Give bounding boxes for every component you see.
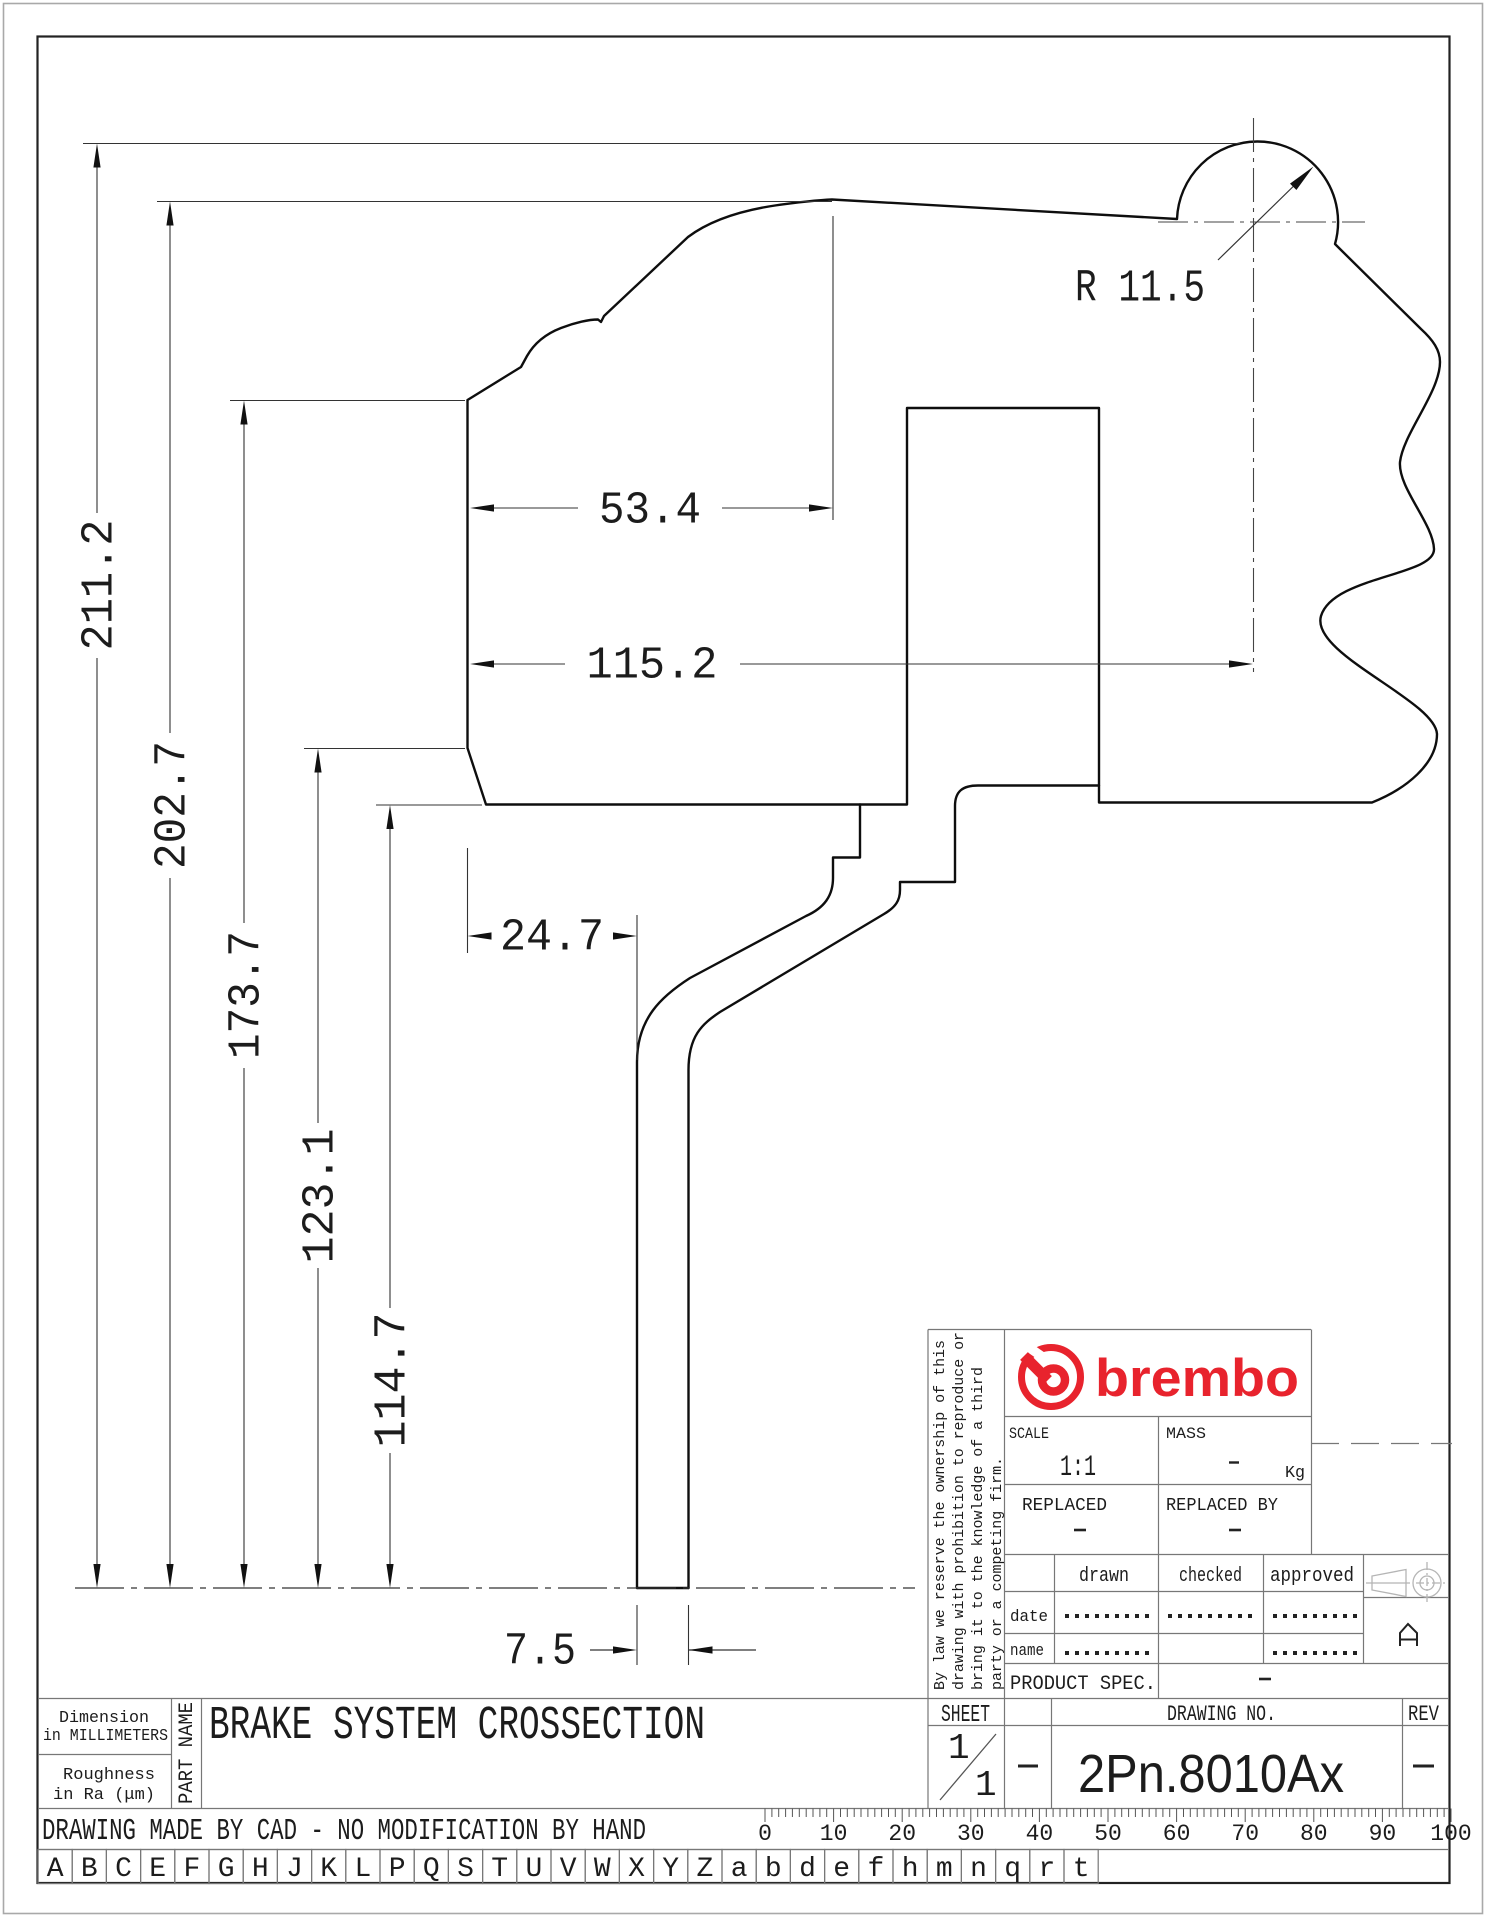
svg-text:date: date <box>1010 1608 1048 1627</box>
svg-text:n: n <box>970 1854 987 1885</box>
svg-text:E: E <box>149 1854 166 1885</box>
svg-text:drawing with prohibition to re: drawing with prohibition to reproduce or <box>952 1332 968 1690</box>
svg-text:REPLACED BY: REPLACED BY <box>1166 1496 1278 1516</box>
svg-text:in MILLIMETERS: in MILLIMETERS <box>43 1727 168 1746</box>
svg-text:24.7: 24.7 <box>500 913 604 964</box>
svg-text:Q: Q <box>423 1854 440 1885</box>
svg-text:V: V <box>560 1854 577 1885</box>
svg-text:bring it to the knowledge of a: bring it to the knowledge of a third <box>971 1367 987 1690</box>
svg-text:REV: REV <box>1408 1702 1440 1727</box>
svg-text:2Pn.8010Ax: 2Pn.8010Ax <box>1078 1744 1344 1804</box>
svg-text:80: 80 <box>1300 1821 1328 1847</box>
svg-text:G: G <box>218 1854 235 1885</box>
svg-text:b: b <box>765 1854 782 1885</box>
svg-text:53.4: 53.4 <box>599 486 701 537</box>
svg-text:DRAWING NO.: DRAWING NO. <box>1167 1702 1276 1727</box>
svg-text:h: h <box>902 1854 919 1885</box>
svg-text:115.2: 115.2 <box>587 641 718 692</box>
svg-text:0: 0 <box>758 1821 772 1847</box>
svg-text:S: S <box>457 1854 474 1885</box>
svg-text:in Ra (μm): in Ra (μm) <box>53 1786 155 1805</box>
svg-text:Kg: Kg <box>1285 1464 1305 1483</box>
svg-text:70: 70 <box>1231 1821 1259 1847</box>
svg-text:40: 40 <box>1026 1821 1054 1847</box>
svg-text:114.7: 114.7 <box>368 1313 419 1448</box>
svg-text:C: C <box>115 1854 132 1885</box>
svg-text:SHEET: SHEET <box>941 1702 990 1729</box>
svg-text:e: e <box>833 1854 850 1885</box>
svg-text:100: 100 <box>1430 1821 1471 1847</box>
svg-text:brembo: brembo <box>1095 1349 1299 1408</box>
svg-text:drawn: drawn <box>1079 1565 1129 1588</box>
svg-text:K: K <box>320 1854 337 1885</box>
svg-text:MASS: MASS <box>1166 1425 1206 1443</box>
svg-text:1: 1 <box>975 1765 997 1806</box>
svg-text:t: t <box>1073 1854 1090 1885</box>
svg-text:r: r <box>1038 1854 1055 1885</box>
svg-text:REPLACED: REPLACED <box>1022 1496 1107 1516</box>
svg-text:party or a competing firm.: party or a competing firm. <box>990 1457 1006 1690</box>
svg-text:approved: approved <box>1270 1565 1354 1588</box>
svg-text:a: a <box>731 1854 748 1885</box>
svg-text:1: 1 <box>948 1728 970 1769</box>
svg-text:U: U <box>525 1854 542 1885</box>
svg-text:173.7: 173.7 <box>222 931 273 1059</box>
svg-text:P: P <box>389 1854 406 1885</box>
svg-text:PART NAME: PART NAME <box>176 1702 199 1804</box>
svg-text:A: A <box>47 1854 64 1885</box>
svg-text:By law we reserve the ownershi: By law we reserve the ownership of this <box>933 1340 949 1690</box>
svg-text:m: m <box>936 1854 953 1885</box>
svg-text:202.7: 202.7 <box>148 741 199 869</box>
svg-text:f: f <box>867 1854 884 1885</box>
svg-text:1:1: 1:1 <box>1060 1451 1096 1485</box>
svg-text:20: 20 <box>888 1821 916 1847</box>
svg-text:q: q <box>1004 1854 1021 1885</box>
svg-text:DRAWING MADE BY CAD - NO MODIF: DRAWING MADE BY CAD - NO MODIFICATION BY… <box>42 1814 646 1849</box>
svg-text:name: name <box>1010 1642 1044 1661</box>
svg-text:d: d <box>799 1854 816 1885</box>
svg-text:30: 30 <box>957 1821 985 1847</box>
svg-text:Y: Y <box>662 1854 679 1885</box>
svg-text:Dimension: Dimension <box>59 1709 149 1728</box>
svg-text:SCALE: SCALE <box>1009 1425 1049 1443</box>
svg-text:50: 50 <box>1094 1821 1122 1847</box>
svg-text:T: T <box>491 1854 508 1885</box>
svg-text:211.2: 211.2 <box>75 520 126 651</box>
svg-text:123.1: 123.1 <box>296 1129 347 1264</box>
svg-text:Z: Z <box>696 1854 713 1885</box>
svg-text:R 11.5: R 11.5 <box>1075 264 1205 315</box>
svg-text:F: F <box>183 1854 200 1885</box>
svg-text:B: B <box>81 1854 98 1885</box>
svg-text:10: 10 <box>820 1821 848 1847</box>
svg-text:W: W <box>594 1854 611 1885</box>
svg-text:Roughness: Roughness <box>63 1766 155 1785</box>
svg-text:H: H <box>252 1854 269 1885</box>
svg-text:BRAKE SYSTEM CROSSECTION: BRAKE SYSTEM CROSSECTION <box>209 1700 705 1753</box>
svg-text:J: J <box>286 1854 303 1885</box>
svg-text:7.5: 7.5 <box>504 1627 576 1678</box>
svg-text:checked: checked <box>1179 1565 1242 1588</box>
svg-text:X: X <box>628 1854 645 1885</box>
svg-text:60: 60 <box>1163 1821 1191 1847</box>
svg-text:90: 90 <box>1369 1821 1397 1847</box>
svg-text:L: L <box>354 1854 371 1885</box>
svg-text:PRODUCT SPEC.: PRODUCT SPEC. <box>1010 1673 1156 1696</box>
